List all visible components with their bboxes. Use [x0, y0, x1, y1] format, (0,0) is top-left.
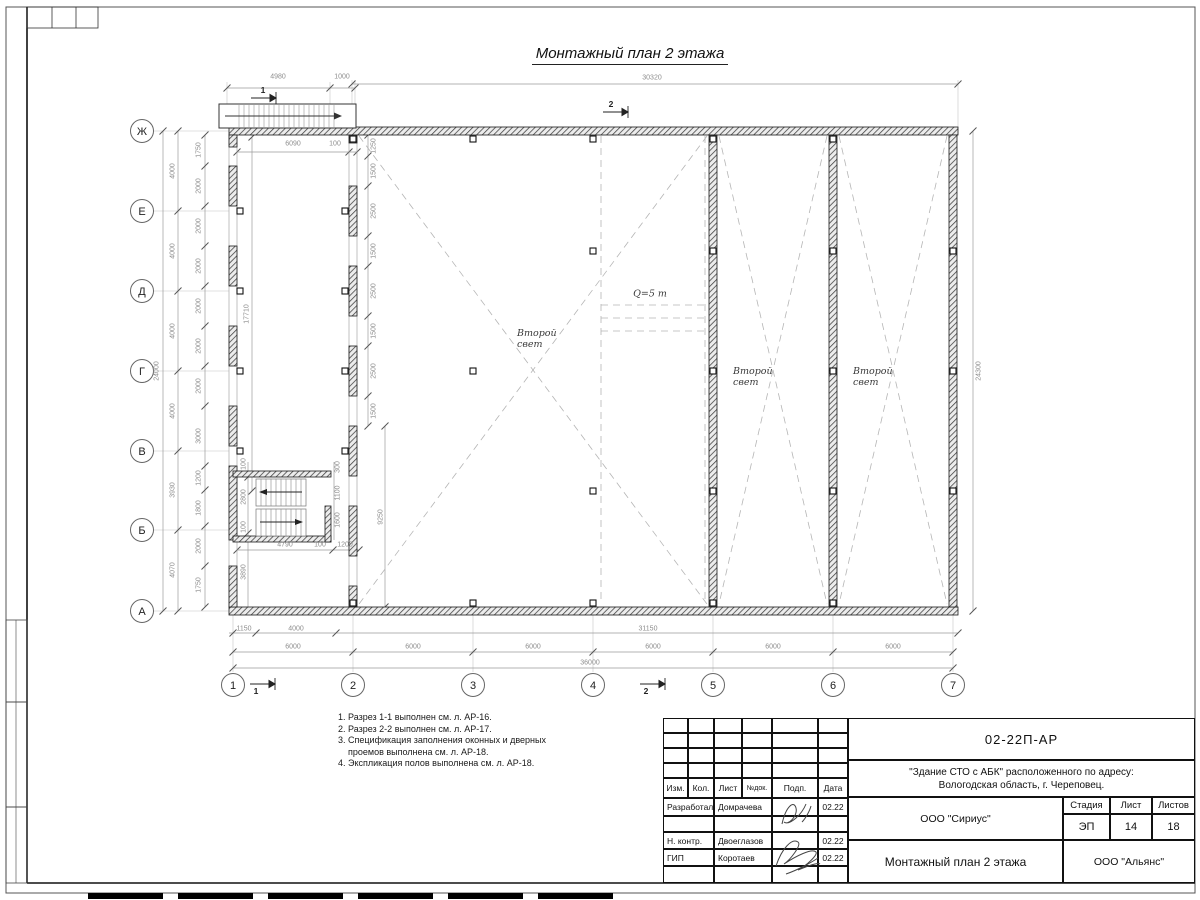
titleblock-cell: Двоеглазов	[714, 832, 772, 849]
column-marker	[350, 136, 356, 142]
designer-org: ООО "Сириус"	[848, 797, 1063, 840]
titleblock-cell	[772, 763, 818, 778]
titleblock-cell: 02.22	[818, 798, 848, 816]
dim-label: 2000	[196, 178, 203, 194]
stage-label: Стадия	[1063, 797, 1110, 814]
titleblock-cell	[772, 798, 818, 816]
titleblock-cell	[818, 816, 848, 832]
column-marker	[710, 488, 716, 494]
titleblock-cell	[772, 866, 818, 883]
titleblock-cell: 02.22	[818, 832, 848, 849]
titleblock-cell: Коротаев	[714, 849, 772, 866]
section-mark-label: 2	[644, 686, 649, 696]
column-marker	[590, 600, 596, 606]
dim-label: 6000	[285, 644, 301, 651]
column-marker	[342, 368, 348, 374]
project-line2: Вологодская область, г. Череповец.	[939, 779, 1105, 792]
dim-label: 4000	[170, 163, 177, 179]
titleblock-cell	[772, 849, 818, 866]
drawing-sheet: ЖЕДГВБА1234567 Монтажный план 2 этажа Q=…	[0, 0, 1200, 900]
note-line: проемов выполнена см. л. АР-18.	[338, 747, 546, 759]
dim-label: 31150	[639, 626, 658, 633]
dim-label: 3930	[170, 482, 177, 498]
dim-label: 1250	[371, 138, 378, 154]
titleblock-cell	[818, 718, 848, 733]
column-marker	[237, 368, 243, 374]
axis-bubble-label: Б	[138, 525, 145, 537]
titleblock-header-cell: Подп.	[772, 778, 818, 798]
dim-label: 2000	[196, 538, 203, 554]
dim-label: 24300	[976, 361, 983, 380]
staircase	[256, 479, 306, 536]
second-light-label: Второй свет	[517, 328, 563, 351]
titleblock-cell	[742, 718, 772, 733]
dim-label: 2000	[196, 378, 203, 394]
second-light-label: Второй свет	[733, 366, 779, 389]
axis-bubble-label: Е	[138, 206, 145, 218]
column-marker	[830, 248, 836, 254]
column-marker	[710, 600, 716, 606]
section-mark-label: 2	[609, 99, 614, 109]
titleblock-cell	[663, 816, 714, 832]
dim-label: 2000	[196, 258, 203, 274]
column-marker	[342, 448, 348, 454]
note-line: 3. Спецификация заполнения оконных и две…	[338, 735, 546, 747]
dim-label: 6000	[645, 644, 661, 651]
dim-label: 100	[314, 542, 326, 549]
column-marker	[950, 248, 956, 254]
axis-bubble-label: 3	[470, 680, 476, 692]
axis-bubble-label: Д	[138, 286, 146, 298]
titleblock-cell: Домрачева	[714, 798, 772, 816]
titleblock-header-cell: Лист	[714, 778, 742, 798]
sheet-title: Монтажный план 2 этажа	[848, 840, 1063, 883]
note-line: 1. Разрез 1-1 выполнен см. л. АР-16.	[338, 712, 546, 724]
customer-org: ООО "Альянс"	[1063, 840, 1195, 883]
column-marker	[710, 368, 716, 374]
titleblock-header-cell: Изм.	[663, 778, 688, 798]
dim-label: 6000	[885, 644, 901, 651]
column-marker	[830, 136, 836, 142]
column-marker	[830, 488, 836, 494]
axis-bubble-label: 1	[230, 680, 236, 692]
dim-label: 4980	[270, 74, 286, 81]
axis-bubble-label: 2	[350, 680, 356, 692]
section-mark-arrows	[250, 92, 665, 690]
axis-bubble-label: Ж	[137, 126, 147, 138]
titleblock-cell	[772, 832, 818, 849]
titleblock-cell	[772, 816, 818, 832]
column-marker	[590, 488, 596, 494]
sheets-total: 18	[1152, 814, 1195, 840]
titleblock-cell	[714, 718, 742, 733]
dim-label: 2000	[196, 218, 203, 234]
dim-label: 100	[241, 521, 248, 533]
column-marker	[237, 448, 243, 454]
column-marker	[470, 136, 476, 142]
axis-bubble-label: 7	[950, 680, 956, 692]
titleblock-cell	[772, 718, 818, 733]
dim-label: 1200	[337, 542, 353, 549]
notes: 1. Разрез 1-1 выполнен см. л. АР-16.2. Р…	[338, 712, 546, 770]
dim-label: 3890	[241, 564, 248, 580]
dim-label: 300	[335, 461, 342, 473]
dim-label: 4000	[170, 403, 177, 419]
dim-label: 1500	[371, 163, 378, 179]
titleblock-cell	[818, 733, 848, 748]
dim-label: 9250	[378, 509, 385, 525]
dim-label: 6090	[285, 141, 301, 148]
titleblock-cell	[688, 718, 714, 733]
crane-capacity-label: Q=5 т	[633, 289, 667, 300]
axis-bubble-label: 5	[710, 680, 716, 692]
titleblock-cell	[688, 748, 714, 763]
section-mark-label: 1	[261, 85, 266, 95]
dim-label: 6000	[765, 644, 781, 651]
titleblock-cell: Разработал	[663, 798, 714, 816]
dim-label: 2500	[371, 363, 378, 379]
titleblock-cell	[742, 748, 772, 763]
dim-label: 1000	[334, 74, 350, 81]
column-marker	[342, 288, 348, 294]
titleblock-cell	[714, 866, 772, 883]
dim-label: 1200	[196, 470, 203, 486]
axis-bubble-label: В	[138, 446, 145, 458]
dim-label: 2500	[371, 283, 378, 299]
dim-label: 2000	[196, 338, 203, 354]
column-marker	[710, 248, 716, 254]
dim-label: 2000	[196, 298, 203, 314]
titleblock-cell	[714, 763, 742, 778]
dim-label: 1100	[335, 485, 342, 500]
dim-label: 4790	[277, 542, 293, 549]
dim-label: 2800	[241, 489, 248, 505]
dim-label: 30320	[642, 75, 661, 82]
dim-label: 1500	[371, 403, 378, 419]
dim-label: 4070	[170, 562, 177, 578]
sheet-label: Лист	[1110, 797, 1152, 814]
drawing-title: Монтажный план 2 этажа	[500, 45, 760, 62]
second-light-label: Второй свет	[853, 366, 899, 389]
dim-label: 36000	[580, 660, 599, 667]
titleblock-cell	[663, 733, 688, 748]
columns	[237, 136, 956, 606]
title-block: Изм.Кол.Лист№док.Подп.ДатаРазработалДомр…	[663, 718, 1195, 883]
column-marker	[710, 136, 716, 142]
titleblock-cell	[818, 748, 848, 763]
note-line: 2. Разрез 2-2 выполнен см. л. АР-17.	[338, 724, 546, 736]
titleblock-cell	[772, 748, 818, 763]
dim-label: 100	[241, 458, 248, 470]
dim-label: 4000	[170, 323, 177, 339]
sheets-label: Листов	[1152, 797, 1195, 814]
axis-bubble-label: 4	[590, 680, 596, 692]
titleblock-cell	[772, 733, 818, 748]
extension-lines	[154, 80, 958, 672]
note-line: 4. Экспликация полов выполнена см. л. АР…	[338, 758, 546, 770]
dimension-lines	[163, 84, 973, 668]
dim-label: 17710	[244, 304, 251, 323]
project-line1: "Здание СТО с АБК" расположенного по адр…	[909, 766, 1134, 779]
titleblock-cell: 02.22	[818, 849, 848, 866]
dim-label: 100	[329, 141, 341, 148]
dim-label: 1150	[236, 626, 251, 633]
column-marker	[237, 208, 243, 214]
titleblock-cell	[663, 763, 688, 778]
column-marker	[470, 600, 476, 606]
titleblock-cell: Н. контр.	[663, 832, 714, 849]
column-marker	[950, 488, 956, 494]
titleblock-cell	[818, 866, 848, 883]
dim-label: 24000	[154, 361, 161, 380]
sheet-number: 14	[1110, 814, 1152, 840]
titleblock-cell	[714, 733, 742, 748]
section-mark-label: 1	[254, 686, 259, 696]
titleblock-cell	[663, 866, 714, 883]
dim-label: 3000	[196, 428, 203, 444]
titleblock-cell: ГИП	[663, 849, 714, 866]
dim-label: 4000	[288, 626, 304, 633]
dim-label: 1750	[196, 142, 203, 158]
project-description: "Здание СТО с АБК" расположенного по адр…	[848, 760, 1195, 797]
titleblock-cell	[742, 763, 772, 778]
titleblock-cell	[663, 718, 688, 733]
titleblock-header-cell: №док.	[742, 778, 772, 798]
column-marker	[830, 600, 836, 606]
titleblock-header-cell: Дата	[818, 778, 848, 798]
column-marker	[950, 368, 956, 374]
axis-bubble-label: Г	[139, 366, 145, 378]
column-marker	[342, 208, 348, 214]
titleblock-cell	[818, 763, 848, 778]
titleblock-cell	[688, 763, 714, 778]
column-marker	[470, 368, 476, 374]
dim-label: 6000	[405, 644, 421, 651]
titleblock-header-cell: Кол.	[688, 778, 714, 798]
axis-bubble-label: А	[138, 606, 146, 618]
dim-label: 1800	[196, 500, 203, 516]
dim-label: 6000	[525, 644, 541, 651]
column-marker	[237, 288, 243, 294]
dim-label: 1500	[371, 243, 378, 259]
titleblock-cell	[663, 748, 688, 763]
stage-value: ЭП	[1063, 814, 1110, 840]
dim-label: 2500	[371, 203, 378, 219]
column-marker	[590, 136, 596, 142]
dim-label: 1750	[196, 577, 203, 593]
titleblock-cell	[714, 748, 742, 763]
dim-label: 1600	[335, 512, 342, 528]
titleblock-cell	[714, 816, 772, 832]
titleblock-cell	[688, 733, 714, 748]
column-marker	[590, 248, 596, 254]
titleblock-cell	[742, 733, 772, 748]
dim-label: 1500	[371, 323, 378, 339]
axis-bubble-label: 6	[830, 680, 836, 692]
doc-number: 02-22П-АР	[848, 718, 1195, 760]
exterior-stair	[219, 104, 356, 128]
dim-label: 4000	[170, 243, 177, 259]
column-marker	[350, 600, 356, 606]
column-marker	[830, 368, 836, 374]
